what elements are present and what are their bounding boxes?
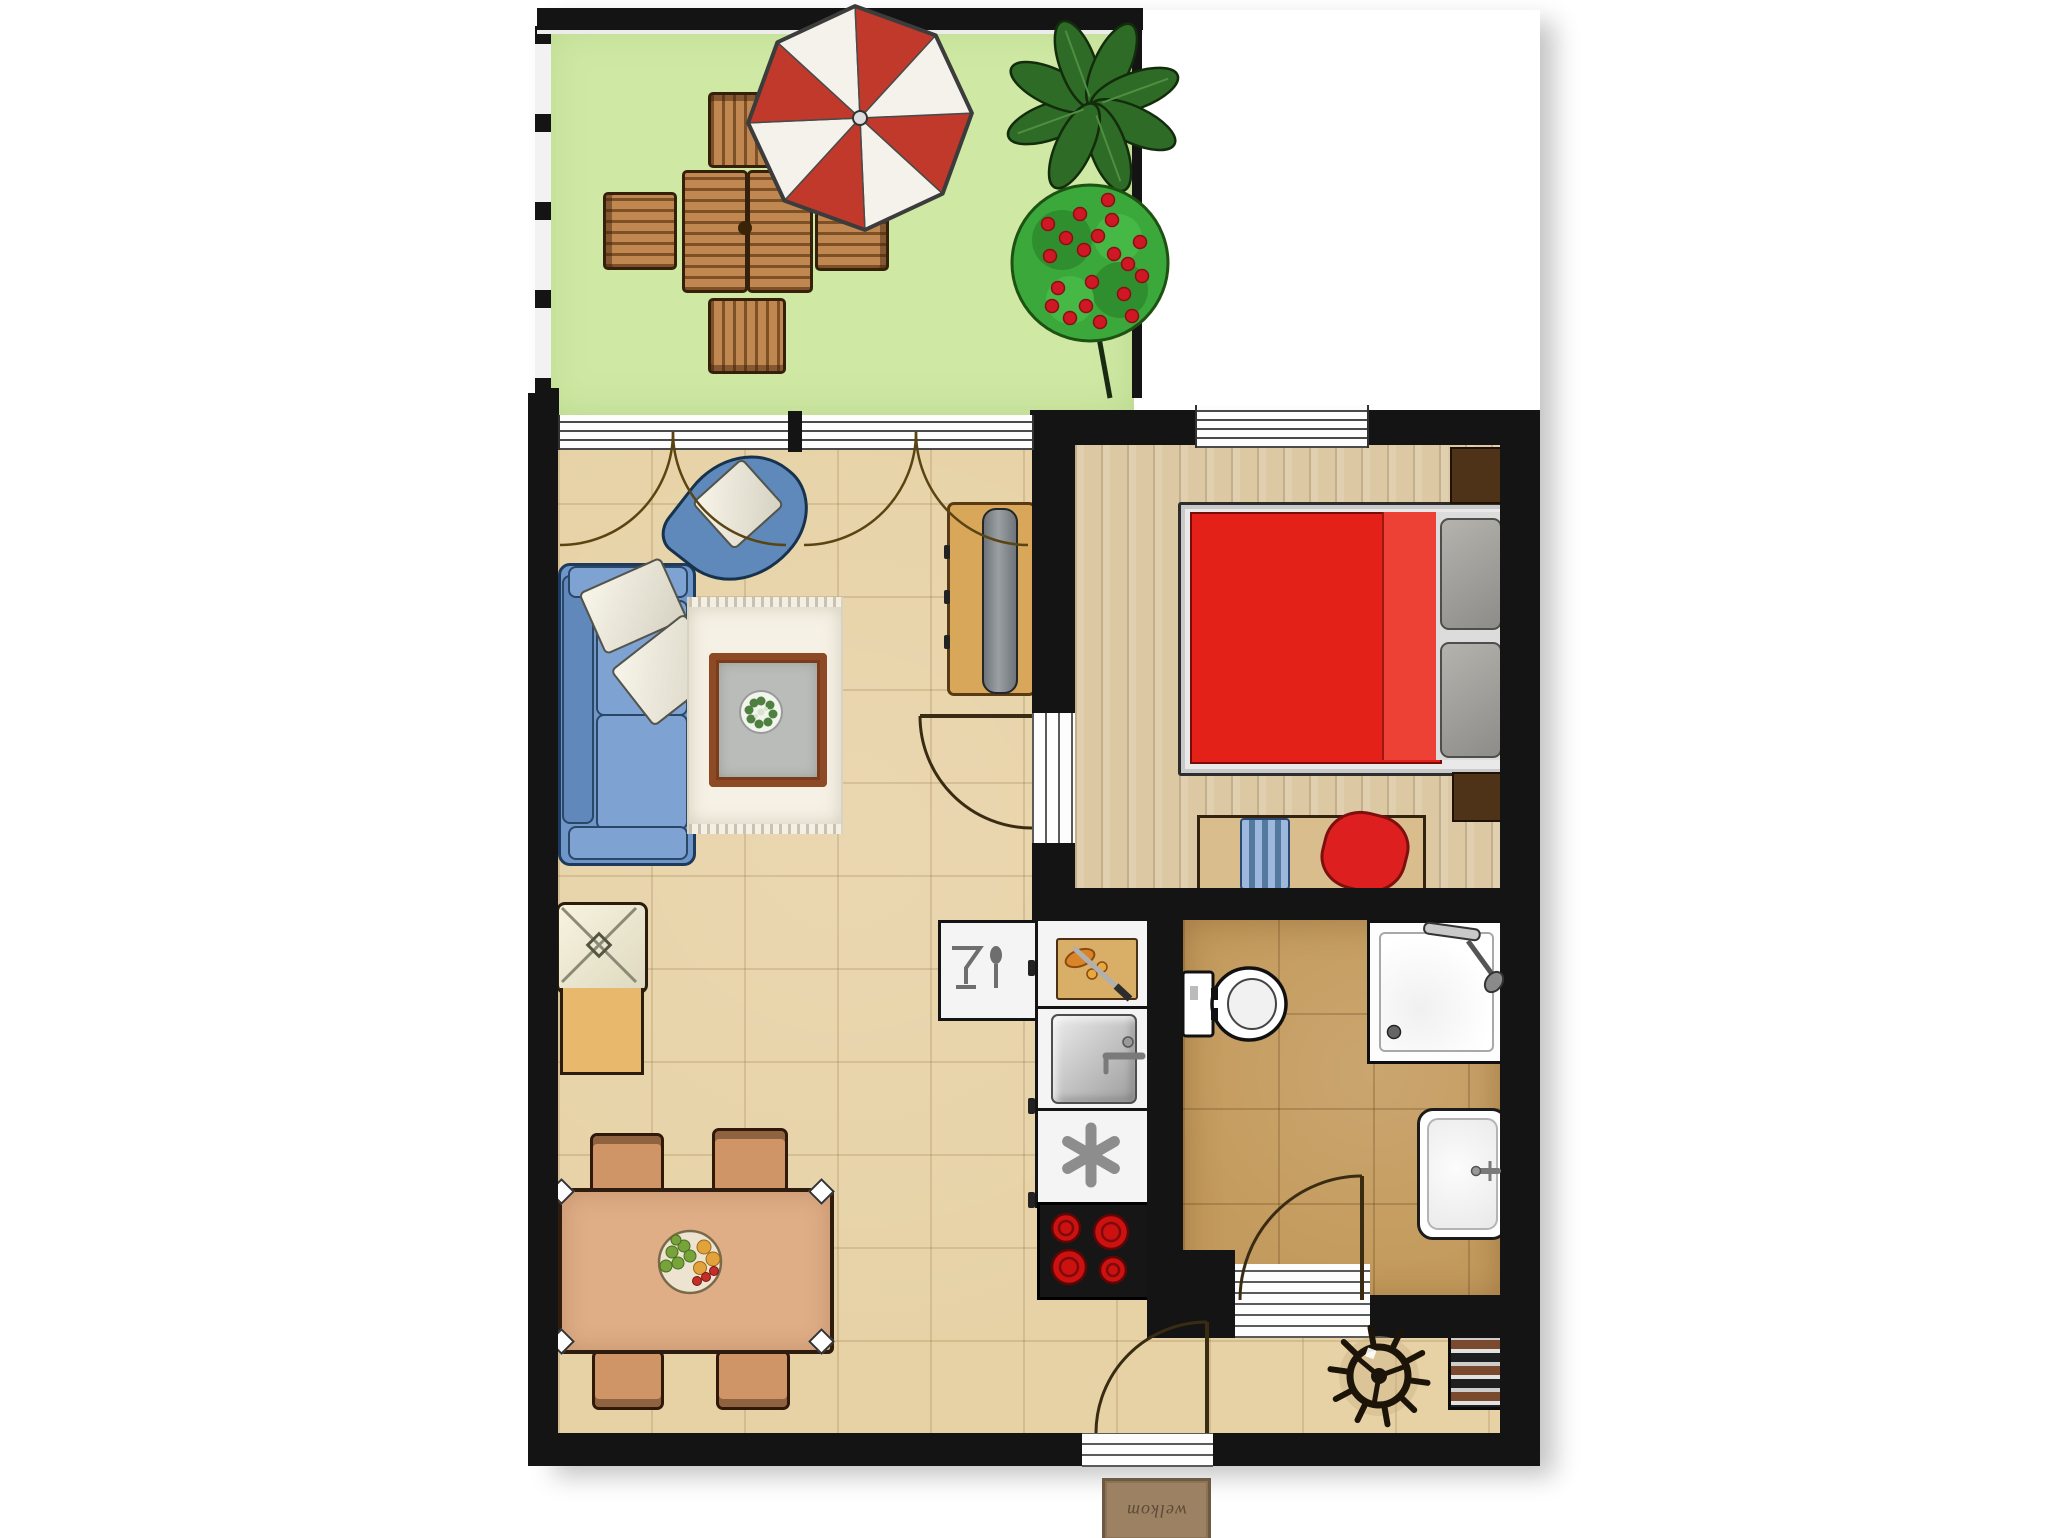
terrace-right-wall [1132,26,1142,398]
kitchen-handle [1028,1192,1035,1208]
bathroom-door-threshold [1235,1264,1370,1338]
sofa-seat-cushion [596,714,688,830]
bed-pillow [1440,642,1502,758]
kitchen-sink-basin [1051,1014,1137,1104]
kitchen-bathroom-wall [1147,920,1183,1300]
patio-table-knob [738,221,752,235]
dining-table [558,1188,834,1354]
tv [982,508,1018,694]
bedroom-top-wall-left [1030,410,1195,445]
bedroom-door-threshold [1032,713,1075,843]
lounge-chair-body [560,988,644,1075]
nightstand [1452,772,1506,822]
bed-pillow [1440,518,1502,630]
bathroom-bottom-wall-left [1147,1250,1235,1338]
patio-table-right-leaf [747,170,813,293]
dining-chair [716,1350,790,1410]
coffee-table [709,653,827,787]
sideboard-handle [944,545,950,559]
terrace-top-wall [537,8,1143,30]
cooktop [1037,1202,1153,1300]
bedroom-window [1195,405,1369,448]
patio-chair-top [708,92,784,168]
patio-chair-right [815,210,889,271]
kitchen-handle [1028,960,1035,976]
shower-tray [1379,932,1494,1052]
bottom-exterior-wall-left [528,1433,1082,1466]
patio-chair-left [603,192,677,270]
sideboard-handle [944,590,950,604]
kitchen-handle [1028,1098,1035,1114]
sofa-armrest-bottom [568,826,688,860]
freezer [1035,1108,1153,1208]
living-bedroom-wall-upper [1032,443,1075,713]
entrance-door-threshold [1082,1433,1213,1467]
welcome-mat-text: welkom [1126,1500,1187,1521]
sideboard-handle [944,635,950,649]
bed-duvet-fold [1382,512,1438,760]
lounge-chair-cushion [556,902,648,994]
dining-chair [592,1350,664,1410]
bedroom-bathroom-wall [1032,888,1505,920]
left-exterior-wall [528,393,558,1466]
washbasin [1417,1108,1508,1240]
window-mullion [788,411,802,452]
blue-bag [1240,818,1290,890]
dining-chair [712,1128,788,1194]
bottom-exterior-wall-right [1213,1433,1540,1466]
terrace-fence [535,26,551,390]
dishwasher [938,920,1038,1021]
right-exterior-wall [1500,410,1540,1466]
floor-plan: welkom [0,0,2048,1538]
bedroom-top-wall-right [1365,410,1540,445]
cutting-board [1056,938,1138,1000]
welcome-mat: welkom [1102,1478,1211,1538]
shower [1367,920,1506,1064]
patio-chair-bottom [708,298,786,374]
washbasin-bowl [1427,1118,1498,1230]
bathroom-bottom-wall-right [1370,1295,1500,1338]
